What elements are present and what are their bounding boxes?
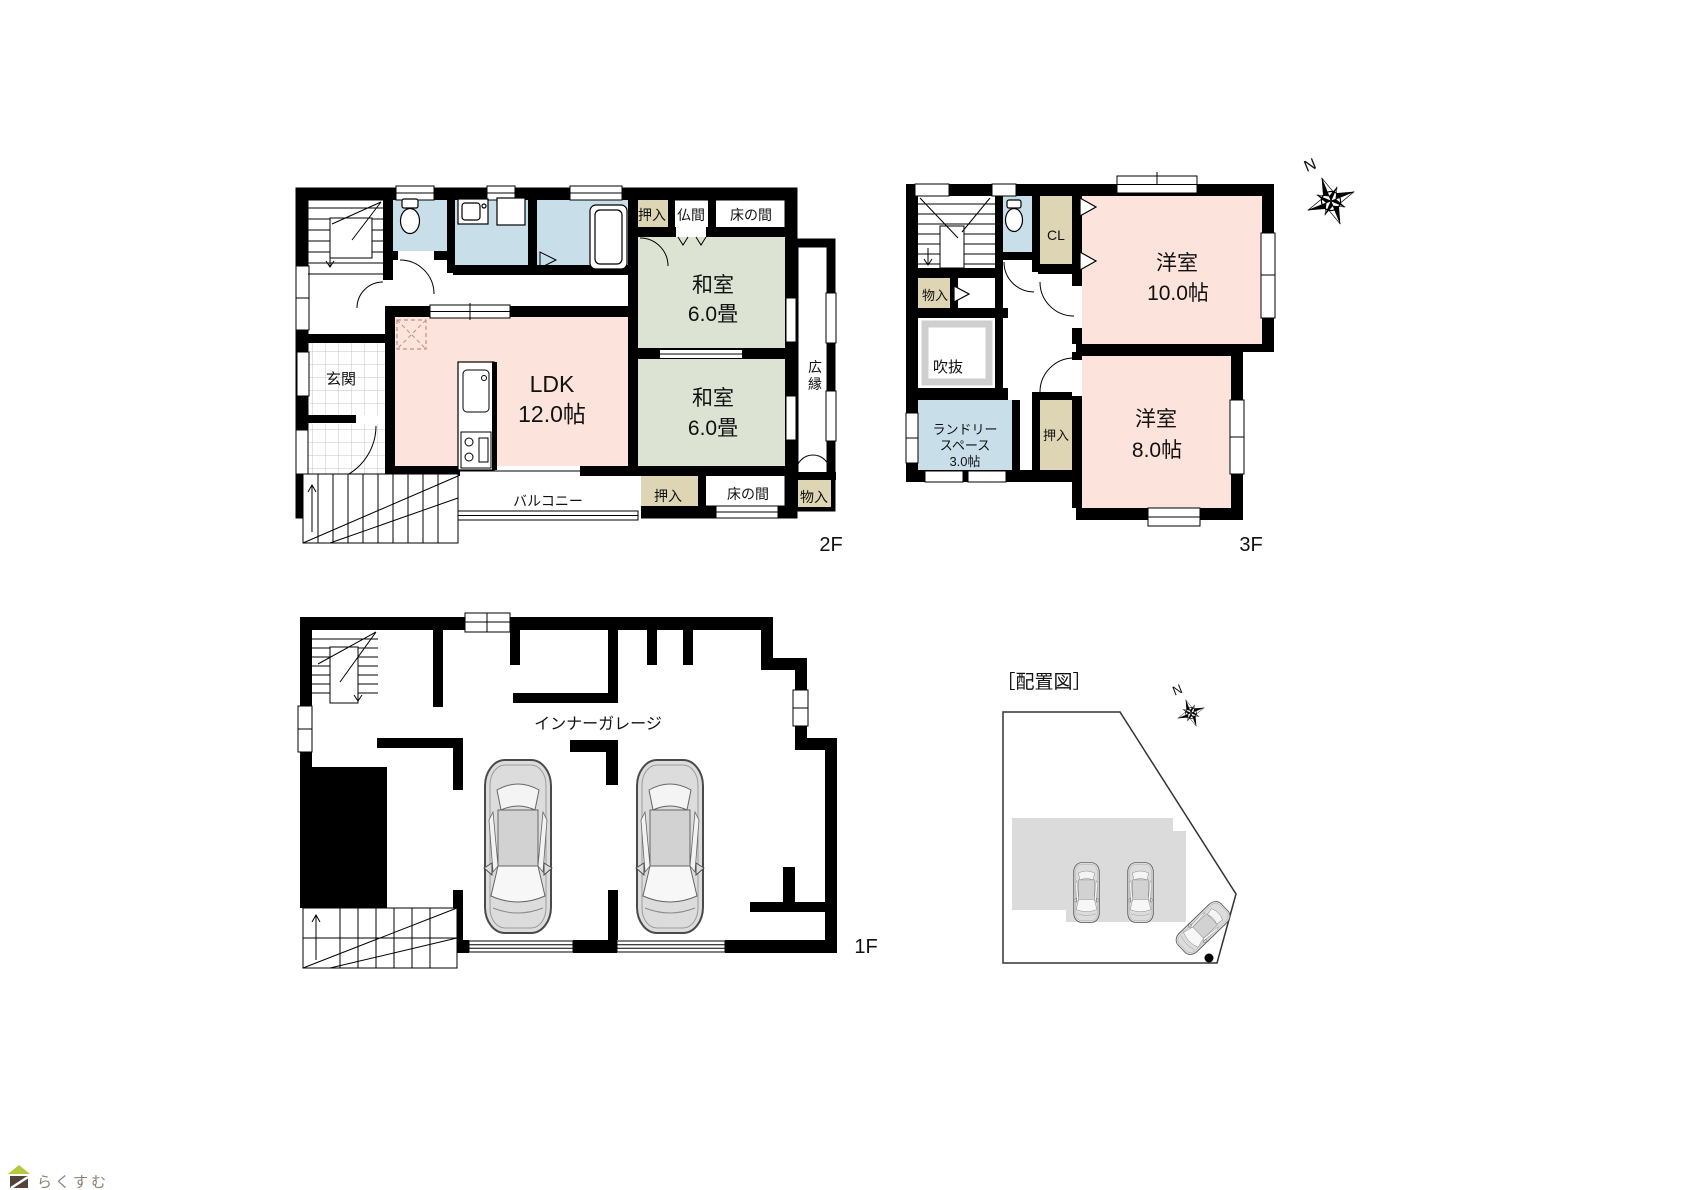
- label-floor-2f: 2F: [819, 534, 842, 556]
- solid-storage-block: [300, 767, 387, 908]
- sink-icon-2f: [458, 199, 488, 224]
- washer-icon-2f: [497, 198, 525, 225]
- label-site-title: ［配置図］: [996, 671, 1091, 693]
- site-corner-marker: [1205, 954, 1214, 963]
- kitchen-counter-icon: [458, 362, 497, 470]
- logo: らくすむ: [8, 1165, 109, 1190]
- label-yoshitsu10-size: 10.0帖: [1147, 282, 1209, 305]
- label-yoshitsu10-name: 洋室: [1156, 252, 1198, 275]
- fukinuke-void: [918, 318, 995, 388]
- label-oshiire-bottom-2f: 押入: [654, 488, 682, 504]
- label-oshiire-3f: 押入: [1043, 428, 1069, 443]
- label-washitsu-top-size: 6.0畳: [688, 303, 738, 326]
- label-laundry-1: ランドリー: [932, 422, 997, 437]
- label-yoshitsu8-name: 洋室: [1135, 408, 1177, 431]
- label-tokonoma-top: 床の間: [730, 207, 772, 223]
- exterior-stairs-1f: [303, 908, 457, 968]
- label-hiroen-2: 縁: [808, 376, 822, 392]
- yoshitsu8-room: [1082, 356, 1231, 508]
- car-icon-site-2: [1127, 863, 1153, 923]
- label-laundry-3: 3.0帖: [949, 454, 980, 469]
- garage-shutter-right: [617, 941, 725, 952]
- label-oshiire-top-2f: 押入: [638, 207, 666, 223]
- label-cl: CL: [1047, 227, 1065, 243]
- label-floor-1f: 1F: [854, 936, 877, 958]
- logo-text: らくすむ: [37, 1174, 109, 1190]
- toilet-room-2f: [393, 200, 447, 258]
- floorplan-canvas: 押入 仏間 床の間 和室 6.0畳 和室 6.0畳 広 縁 玄関 LDK 12.…: [0, 0, 1684, 1190]
- car-icon-site-1: [1073, 863, 1099, 923]
- exterior-stairs-2f: [303, 474, 458, 543]
- floor2-plan: 押入 仏間 床の間 和室 6.0畳 和室 6.0畳 広 縁 玄関 LDK 12.…: [296, 186, 843, 556]
- compass-icon-site: N: [1170, 681, 1209, 731]
- label-yoshitsu8-size: 8.0帖: [1132, 439, 1182, 462]
- label-monoire-3f: 物入: [922, 288, 948, 303]
- toilet-icon-3f: [1006, 200, 1023, 232]
- label-genkan: 玄関: [326, 371, 356, 388]
- floor3-plan: CL 洋室 10.0帖 物入 吹抜 ランドリー スペース 3.0帖 押入 洋室 …: [906, 156, 1364, 556]
- label-north-site: N: [1170, 681, 1184, 698]
- label-hiroen-1: 広: [808, 359, 822, 375]
- site-plan: ［配置図］ N: [996, 671, 1236, 963]
- label-butsuma: 仏間: [677, 207, 705, 223]
- label-laundry-2: スペース: [940, 438, 990, 453]
- garage-shutter-left: [469, 941, 573, 952]
- label-garage: インナーガレージ: [534, 715, 662, 733]
- label-floor-3f: 3F: [1239, 534, 1262, 556]
- ldk-room: [395, 314, 630, 470]
- label-washitsu-top-name: 和室: [692, 274, 734, 297]
- label-tokonoma-bottom: 床の間: [727, 486, 769, 502]
- car-icon-garage-2: [636, 760, 704, 933]
- stairs-1f: [312, 632, 378, 703]
- floor1-plan: インナーガレージ 1F: [298, 613, 878, 968]
- label-monoire-2f: 物入: [800, 489, 828, 505]
- washitsu-bottom-room: [636, 359, 785, 466]
- compass-icon-3f: N: [1298, 156, 1363, 234]
- label-washitsu-bottom-name: 和室: [692, 387, 734, 410]
- label-ldk-name: LDK: [530, 371, 575, 397]
- label-fukinuke: 吹抜: [933, 359, 963, 376]
- label-balcony: バルコニー: [513, 493, 583, 509]
- label-washitsu-bottom-size: 6.0畳: [688, 417, 738, 440]
- car-icon-garage-1: [484, 760, 552, 933]
- toilet-icon-2f: [401, 199, 420, 234]
- house-logo-icon: [8, 1165, 30, 1188]
- label-north-3f: N: [1302, 156, 1319, 176]
- label-ldk-size: 12.0帖: [518, 401, 586, 427]
